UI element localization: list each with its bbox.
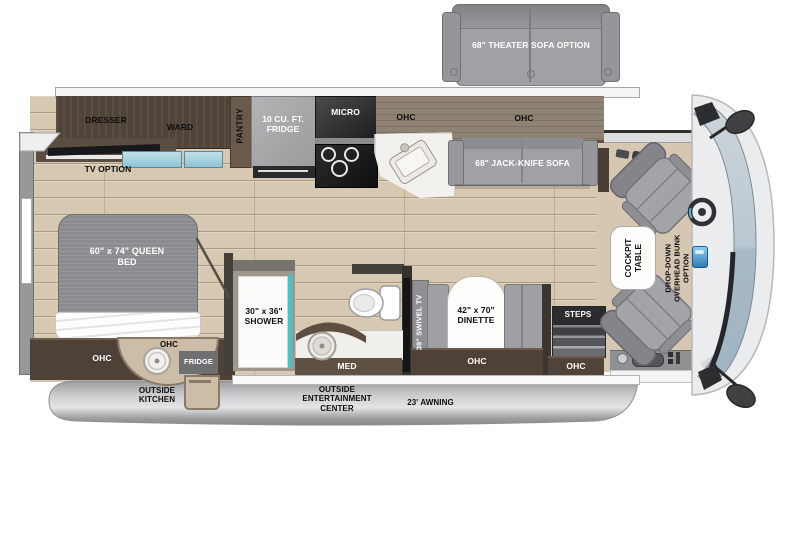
awning-label: 23' AWNING: [388, 398, 473, 407]
cockpit-table: COCKPIT TABLE: [610, 226, 656, 290]
shower-label: 30" x 36" SHOWER: [236, 306, 292, 326]
toilet: [349, 286, 400, 320]
vanity-sink: [296, 322, 366, 359]
fridge-door-handle: [189, 380, 211, 383]
kitchen-ohc-label: OHC: [386, 112, 426, 122]
dash-monitor: [692, 246, 708, 268]
med-label: MED: [327, 361, 367, 371]
dresser-label: DRESSER: [64, 115, 148, 125]
cockpit-table-label: COCKPIT TABLE: [613, 229, 653, 287]
outside-kitchen-label: OUTSIDE KITCHEN: [127, 386, 187, 405]
dinette-label: 42" x 70" DINETTE: [450, 305, 502, 325]
overhead-bunk-label: DROP-DOWN OVERHEAD BUNK OPTION: [665, 232, 692, 304]
queen-bed-label: 60" x 74" QUEEN BED: [87, 246, 167, 267]
bedroom-door-line: [197, 239, 229, 297]
sofa-ohc-label: OHC: [504, 113, 544, 123]
ward-label: WARD: [146, 122, 214, 132]
entry-ohc-label: OHC: [556, 361, 596, 371]
dinette-ohc-label: OHC: [457, 356, 497, 366]
bedroom-ohc-label: OHC: [62, 353, 142, 363]
outside-fridge-door: [184, 375, 220, 410]
awning-rail: [232, 375, 640, 385]
swivel-tv-label: 39" SWIVEL TV: [416, 286, 425, 358]
outside-kitchen-ohc-label: OHC: [148, 340, 190, 349]
jack-knife-sofa-label: 68" JACK-KNIFE SOFA: [455, 158, 590, 168]
tv-option-label: TV OPTION: [58, 164, 158, 174]
outside-fridge-label: FRIDGE: [179, 358, 218, 367]
theater-sofa-label: 68" THEATER SOFA OPTION: [446, 40, 616, 50]
microwave-label: MICRO: [318, 107, 373, 117]
pantry-label: PANTRY: [235, 97, 244, 155]
outside-entertainment-label: OUTSIDE ENTERTAINMENT CENTER: [292, 385, 382, 413]
rv-floorplan: COCKPIT TABLE 68" THEATER SOFA OPTION DR…: [0, 0, 800, 545]
slide-corner-wedge: [20, 133, 60, 151]
steps-label: STEPS: [552, 310, 604, 319]
refrigerator-label: 10 CU. FT. FRIDGE: [253, 114, 313, 134]
dash-monitor-glare: [695, 250, 704, 254]
